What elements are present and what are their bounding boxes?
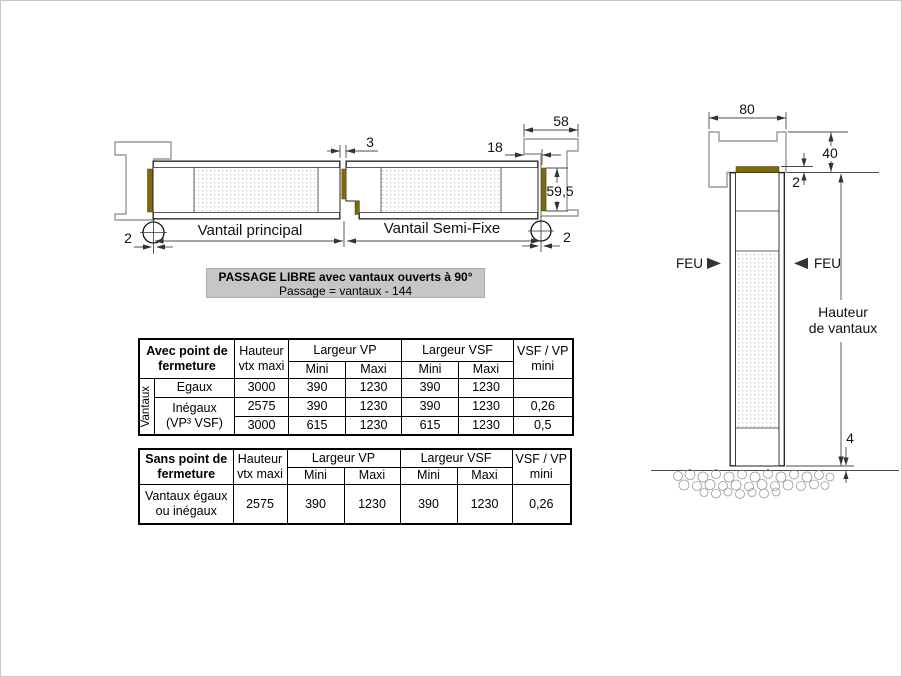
vantail-principal-label: Vantail principal xyxy=(198,222,303,239)
cell-value: 1230 xyxy=(459,378,514,397)
side-label-vantaux-text: Vantaux xyxy=(140,386,153,427)
table-sans-point-de-fermeture: Sans point de fermeture Hauteur vtx maxi… xyxy=(138,448,572,525)
col-header-ratio-line1: VSF / VP xyxy=(517,344,568,358)
dim-3: 3 xyxy=(327,134,378,158)
cell-value: 0,26 xyxy=(512,484,571,524)
col-header-hauteur-line2: vtx maxi xyxy=(237,467,283,481)
table-avec-point-de-fermeture: Avec point de fermeture Hauteur vtx maxi… xyxy=(138,338,574,436)
col-header-largeur-vp: Largeur VP xyxy=(289,339,402,361)
cell-value: 390 xyxy=(289,378,346,397)
cell-value: 1230 xyxy=(346,378,402,397)
subcol-vsf-maxi: Maxi xyxy=(457,467,512,484)
table-row: Vantaux Egaux 3000 390 1230 390 1230 xyxy=(139,378,573,397)
col-header-ratio-line1: VSF / VP xyxy=(516,452,567,466)
subcol-vp-maxi: Maxi xyxy=(346,361,402,378)
table-avec-title: Avec point de fermeture xyxy=(139,339,235,378)
dim-2-left: 2 xyxy=(124,230,173,250)
table-avec-title-line1: Avec point de xyxy=(146,344,228,358)
passage-libre-note: PASSAGE LIBRE avec vantaux ouverts à 90°… xyxy=(206,268,485,298)
leaf-section xyxy=(730,173,785,467)
floor-rubble-pattern xyxy=(674,470,835,499)
dim-58: 58 xyxy=(524,113,578,137)
feu-right-marker: FEU xyxy=(794,256,841,271)
col-header-hauteur-line1: Hauteur xyxy=(239,344,283,358)
dim-3-label: 3 xyxy=(366,134,374,150)
dim-2-top-label: 2 xyxy=(792,174,800,190)
cell-value: 1230 xyxy=(346,397,402,416)
leaf-semi-fixe xyxy=(346,161,538,219)
table-sans-title-line2: fermeture xyxy=(157,467,215,481)
dim-58-label: 58 xyxy=(553,113,569,129)
cell-value: 1230 xyxy=(346,416,402,435)
col-header-largeur-vsf: Largeur VSF xyxy=(402,339,514,361)
feu-right-label: FEU xyxy=(814,256,841,271)
cell-value: 0,26 xyxy=(514,397,573,416)
section-view-drawing: 80 40 2 FEU xyxy=(651,101,899,499)
feu-arrow-left-icon xyxy=(794,258,808,269)
dim-4-label: 4 xyxy=(846,430,854,446)
cell-value: 390 xyxy=(287,484,344,524)
cell-value: 615 xyxy=(289,416,346,435)
leaf-principal xyxy=(153,161,340,219)
cell-value: 390 xyxy=(400,484,457,524)
cell-value: 390 xyxy=(289,397,346,416)
vantail-semi-fixe-label: Vantail Semi-Fixe xyxy=(384,220,500,237)
subcol-vp-mini: Mini xyxy=(289,361,346,378)
cell-value: 390 xyxy=(402,397,459,416)
dim-59-5-label: 59,5 xyxy=(546,183,573,199)
cell-value: 615 xyxy=(402,416,459,435)
row-label-egaux-ou-inegaux: Vantaux égaux ou inégaux xyxy=(139,484,233,524)
dim-80-label: 80 xyxy=(739,101,755,117)
col-header-hauteur-line1: Hauteur xyxy=(238,452,282,466)
datasheet-page: 58 18 59,5 xyxy=(0,0,902,677)
subcol-vp-maxi: Maxi xyxy=(344,467,400,484)
cell-value: 1230 xyxy=(459,416,514,435)
passage-libre-formula: Passage = vantaux - 144 xyxy=(207,284,484,298)
subcol-vsf-mini: Mini xyxy=(402,361,459,378)
col-header-hauteur: Hauteur vtx maxi xyxy=(235,339,289,378)
col-header-ratio-line2: mini xyxy=(530,467,553,481)
passage-libre-title: PASSAGE LIBRE avec vantaux ouverts à 90° xyxy=(207,270,484,284)
seal-strip-middle-upper xyxy=(342,169,346,199)
seal-strip-left xyxy=(148,169,153,212)
col-header-largeur-vsf: Largeur VSF xyxy=(400,449,512,467)
dim-4: 4 xyxy=(786,430,854,483)
cell-value xyxy=(514,378,573,397)
feu-left-marker: FEU xyxy=(676,256,721,271)
row-label-line1: Vantaux égaux xyxy=(145,489,227,503)
cell-value: 1230 xyxy=(457,484,512,524)
row-label-line2: ou inégaux xyxy=(156,504,217,518)
table-avec-title-line2: fermeture xyxy=(158,359,216,373)
subcol-vp-mini: Mini xyxy=(287,467,344,484)
table-sans-title: Sans point de fermeture xyxy=(139,449,233,484)
dim-2-left-label: 2 xyxy=(124,230,132,246)
hauteur-vantaux-label-line1: Hauteur xyxy=(818,304,868,320)
dim-80: 80 xyxy=(709,101,786,129)
row-label-inegaux: Inégaux (VP³ VSF) xyxy=(155,397,235,435)
side-label-vantaux: Vantaux xyxy=(139,378,155,435)
subcol-vsf-maxi: Maxi xyxy=(459,361,514,378)
row-label-egaux: Egaux xyxy=(155,378,235,397)
dim-vantail-semi-fixe: Vantail Semi-Fixe xyxy=(344,220,540,247)
cell-value: 0,5 xyxy=(514,416,573,435)
subcol-vsf-mini: Mini xyxy=(400,467,457,484)
row-label-inegaux-line2: (VP³ VSF) xyxy=(166,416,223,430)
row-label-inegaux-line1: Inégaux xyxy=(172,401,216,415)
seal-strip-top xyxy=(736,167,779,173)
col-header-ratio: VSF / VP mini xyxy=(514,339,573,378)
col-header-largeur-vp: Largeur VP xyxy=(287,449,400,467)
plan-view-drawing: 58 18 59,5 xyxy=(115,113,578,254)
col-header-ratio-line2: mini xyxy=(531,359,554,373)
feu-arrow-right-icon xyxy=(707,258,721,269)
seal-strip-middle-lower xyxy=(355,201,359,215)
feu-left-label: FEU xyxy=(676,256,703,271)
cell-value: 1230 xyxy=(459,397,514,416)
table-row: Inégaux (VP³ VSF) 2575 390 1230 390 1230… xyxy=(139,397,573,416)
cell-value: 3000 xyxy=(235,416,289,435)
hauteur-vantaux-label-line2: de vantaux xyxy=(809,320,878,336)
col-header-hauteur-line2: vtx maxi xyxy=(239,359,285,373)
col-header-ratio: VSF / VP mini xyxy=(512,449,571,484)
col-header-hauteur: Hauteur vtx maxi xyxy=(233,449,287,484)
table-sans-title-line1: Sans point de xyxy=(145,452,227,466)
cell-value: 3000 xyxy=(235,378,289,397)
dim-18-label: 18 xyxy=(487,139,503,155)
dim-vantail-principal: Vantail principal xyxy=(155,222,344,244)
cell-value: 2575 xyxy=(235,397,289,416)
dim-40-label: 40 xyxy=(822,145,838,161)
table-row: Vantaux égaux ou inégaux 2575 390 1230 3… xyxy=(139,484,571,524)
dim-hauteur-vantaux: Hauteur de vantaux xyxy=(809,174,878,466)
cell-value: 2575 xyxy=(233,484,287,524)
cell-value: 390 xyxy=(402,378,459,397)
cell-value: 1230 xyxy=(344,484,400,524)
dim-2-right-label: 2 xyxy=(563,229,571,245)
floor xyxy=(651,470,899,499)
